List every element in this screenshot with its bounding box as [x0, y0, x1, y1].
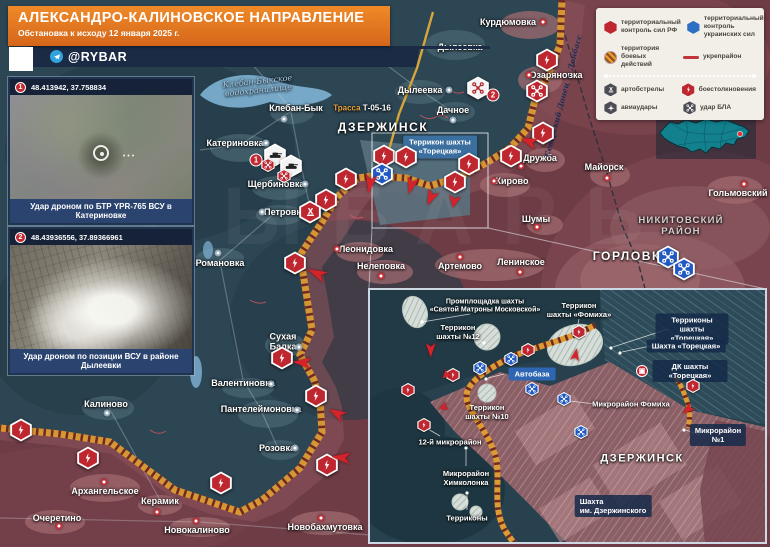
- town-label-kalinovo: Калиново: [84, 399, 128, 409]
- settlement-dot: [154, 509, 161, 516]
- uav-strike-icon: [525, 382, 539, 396]
- drone-strike-photo: •••: [10, 95, 192, 199]
- attack-arrow-icon: ➤: [290, 352, 314, 372]
- legend-divider: [606, 75, 754, 77]
- dzerzhinsk-inset-map: Промплощадка шахты «Святой Матроны Моско…: [368, 288, 767, 544]
- settlement-dot: [101, 479, 108, 486]
- legend-label: боестолкновения: [699, 86, 756, 94]
- legend-item-ua-control: территориальный контроль украинских сил: [687, 15, 764, 40]
- legend-label: артобстрелы: [621, 86, 664, 94]
- artillery-icon: [299, 201, 322, 224]
- town-label-dachnoe: Дачное: [437, 105, 469, 115]
- legend-item-airstrikes: авиаудары: [604, 101, 677, 114]
- clash-icon: [210, 472, 233, 495]
- town-label-ocheretino: Очеретино: [33, 513, 82, 523]
- hex-red-icon: [604, 21, 617, 34]
- inset-label-mikrorayon-fomikha: Микрорайон Фомиха: [592, 400, 670, 409]
- page-title: АЛЕКСАНДРО-КАЛИНОВСКОЕ НАПРАВЛЕНИЕ: [18, 10, 380, 26]
- clash-icon: [444, 171, 467, 194]
- legend-item-fortified-area: укрепрайон: [683, 45, 756, 70]
- town-label-kurdyumovka: Курдюмовка: [480, 17, 536, 27]
- inset-label-12-mikrorayon: 12-й микрорайон: [418, 438, 481, 447]
- settlement-dot: [215, 250, 222, 257]
- town-label-kirovo: Кирово: [496, 176, 529, 186]
- uav-strike-icon: [673, 258, 696, 281]
- uav-strike-icon: [574, 425, 588, 439]
- attack-arrow-icon: ➤: [329, 447, 353, 467]
- attack-arrow-icon: ➤: [359, 170, 381, 195]
- attack-arrow-icon: ➤: [443, 192, 463, 210]
- legend-label: укрепрайон: [703, 53, 741, 61]
- photo-caption: Удар дроном по БТР YPR-765 ВСУ в Катерин…: [10, 199, 192, 223]
- town-label-keramik: Керамик: [141, 496, 179, 506]
- legend-label: удар БЛА: [700, 104, 731, 112]
- photo-marker-1: 1: [250, 154, 263, 167]
- uav-strike-icon: [473, 361, 487, 375]
- legend-item-rf-control: территориальный контроль сил РФ: [604, 15, 681, 40]
- clash-icon: [395, 146, 418, 169]
- clash-icon: [401, 383, 415, 397]
- striped-circle-icon: [604, 51, 617, 64]
- clash-icon: [536, 49, 559, 72]
- title-banner: АЛЕКСАНДРО-КАЛИНОВСКОЕ НАПРАВЛЕНИЕ Обста…: [8, 6, 390, 46]
- crosshair-dots: •••: [123, 153, 136, 160]
- town-label-artemovo: Артемово: [438, 261, 482, 271]
- uav-strike-icon: [504, 352, 518, 366]
- town-label-leonidovka: Леонидовка: [339, 244, 393, 254]
- uav-strike-icon: [557, 392, 571, 406]
- photo-marker-2: 2: [487, 89, 500, 102]
- artillery-icon: [604, 83, 617, 96]
- town-label-nelepovka: Нелеповка: [357, 261, 405, 271]
- inset-label-promploshchadka: Промплощадка шахты «Святой Матроны Моско…: [430, 299, 541, 316]
- settlement-dot: [604, 175, 611, 182]
- clash-icon: [284, 252, 307, 275]
- settlement-dot: [268, 381, 275, 388]
- qr-code: [9, 47, 33, 71]
- town-label-golmovsky: Гольмовский: [708, 188, 767, 198]
- town-label-mayorsk: Майорск: [585, 162, 624, 172]
- settlement-dot: [292, 445, 299, 452]
- clash-icon: [572, 325, 586, 339]
- city-label-dzerzhinsk: ДЗЕРЖИНСК: [338, 121, 429, 135]
- settlement-dot: [457, 254, 464, 261]
- clash-icon: [521, 343, 535, 357]
- clash-icon: [10, 419, 33, 442]
- brand-bar: @RYBAR: [28, 46, 420, 67]
- settlement-dot: [491, 178, 498, 185]
- settlement-dot: [517, 269, 524, 276]
- town-label-dyleevka-w: Дылеевка: [398, 85, 443, 95]
- clash-icon: [417, 418, 431, 432]
- marker-badge: 2: [15, 232, 26, 243]
- marker-badge: 1: [15, 82, 26, 93]
- photo-caption: Удар дроном по позиции ВСУ в районе Дыле…: [10, 349, 192, 373]
- legend-label: территория боевых действий: [621, 45, 677, 70]
- crosshair-icon: [93, 145, 109, 161]
- clash-icon: [77, 447, 100, 470]
- settlement-dot: [259, 209, 266, 216]
- inset-label-terrikon12: Террикон шахты №12: [436, 323, 479, 341]
- settlement-dot: [540, 19, 547, 26]
- town-label-arkhangelskoe: Архангельское: [71, 486, 138, 496]
- attack-arrow-icon: ➤: [423, 341, 438, 359]
- settlement-dot: [741, 181, 748, 188]
- uav-strike-icon: [277, 169, 291, 183]
- photo-header: 2 48.43936556, 37.89366961: [10, 229, 192, 245]
- inset-label-terrikon10: Террикон шахты №10: [465, 403, 508, 421]
- settlement-dot: [296, 344, 303, 351]
- drone-icon: [683, 101, 696, 114]
- page-subtitle: Обстановка к исходу 12 января 2025 г.: [18, 28, 380, 38]
- photo-coordinates: 48.413942, 37.758834: [31, 83, 106, 92]
- legend-item-combat-zone: территория боевых действий: [604, 45, 677, 70]
- drone-strike-photo: [10, 245, 192, 349]
- photo-header: 1 48.413942, 37.758834: [10, 79, 192, 95]
- settlement-dot: [302, 181, 309, 188]
- settlement-dot: [450, 117, 457, 124]
- inset-label-avtobaza: Автобаза: [509, 368, 556, 381]
- settlement-dot: [104, 410, 111, 417]
- clash-icon: [305, 385, 328, 408]
- town-label-romanovka: Романовка: [196, 258, 245, 268]
- uav-strike-icon: [526, 80, 549, 103]
- town-label-kleban-byk: Клебан-Бык: [269, 103, 323, 113]
- settlement-dot: [378, 273, 385, 280]
- settlement-dot: [446, 87, 453, 94]
- telegram-icon: [50, 50, 63, 63]
- road-label-number: Т-05-16: [363, 103, 391, 112]
- attack-arrow-icon: ➤: [399, 172, 422, 197]
- town-label-leninskoe: Ленинское: [497, 257, 545, 267]
- settlement-dot: [526, 72, 533, 79]
- road-label: Трасса Т-05-16: [333, 103, 391, 112]
- inset-label-shakhta-toretskaya: Шахта «Торецкая»: [647, 340, 726, 353]
- district-label-nikitovsky: НИКИТОВСКИЙ РАЙОН: [638, 216, 723, 238]
- town-label-novokalinovo: Новокалиново: [164, 525, 230, 535]
- settlement-dot: [281, 116, 288, 123]
- town-label-valentinovka: Валентиновка: [211, 378, 274, 388]
- inset-label-dzerzhinsk: ДЗЕРЖИНСК: [600, 452, 683, 465]
- inset-label-mikrorayon1: Микрорайон №1: [690, 424, 746, 446]
- legend-label: территориальный контроль украинских сил: [704, 15, 764, 40]
- settlement-dot: [56, 523, 63, 530]
- road-label-prefix: Трасса: [333, 103, 360, 112]
- photo-coordinates: 48.43936556, 37.89366961: [31, 233, 123, 242]
- legend-item-clashes: боестолкновения: [682, 83, 756, 96]
- legend-item-uav-strike: удар БЛА: [683, 101, 756, 114]
- photo-inset-2: 2 48.43936556, 37.89366961 Удар дроном п…: [8, 227, 194, 375]
- inset-label-khimkolonka: Микрорайон Химколонка: [443, 469, 489, 487]
- red-line-icon: [683, 56, 699, 59]
- settlement-dot: [318, 515, 325, 522]
- town-label-rozovka: Розовка: [259, 443, 295, 453]
- clash-icon: [686, 379, 700, 393]
- airstrike-icon: [604, 101, 617, 114]
- town-label-novobakhmutovka: Новобахмутовка: [288, 522, 363, 532]
- inset-label-shakhta-dzerzhinskogo: Шахта им. Дзержинского: [575, 495, 652, 517]
- uav-strike-icon: [261, 158, 275, 172]
- culture-house-icon: ▣: [636, 365, 648, 377]
- inset-label-terrikony: Терриконы: [446, 514, 487, 523]
- legend-item-artillery: артобстрелы: [604, 83, 676, 96]
- clash-icon: [682, 83, 695, 96]
- inset-label-terrikon-fomikha: Террикон шахты «Фомиха»: [547, 301, 611, 319]
- photo-inset-1: 1 48.413942, 37.758834 ••• Удар дроном п…: [8, 77, 194, 225]
- settlement-dot: [294, 407, 301, 414]
- brand-bar-extension: [415, 46, 490, 49]
- legend-label: территориальный контроль сил РФ: [621, 19, 681, 35]
- legend-panel: территориальный контроль сил РФ территор…: [596, 8, 764, 120]
- settlement-dot: [193, 518, 200, 525]
- legend-label: авиаудары: [621, 104, 657, 112]
- town-label-katerinovka: Катериновка: [206, 138, 263, 148]
- clash-icon: [335, 168, 358, 191]
- town-label-panteleymonovka: Пантелеймоновка: [221, 404, 301, 414]
- map-screenshot: РЫБАРЬ Курдюмовка Дылеевка Озаряновка Ды…: [0, 0, 770, 547]
- attack-arrow-icon: ➤: [568, 346, 584, 363]
- settlement-dot: [534, 224, 541, 231]
- settlement-dot: [334, 246, 341, 253]
- hex-blue-icon: [687, 21, 700, 34]
- brand-handle: @RYBAR: [68, 50, 127, 64]
